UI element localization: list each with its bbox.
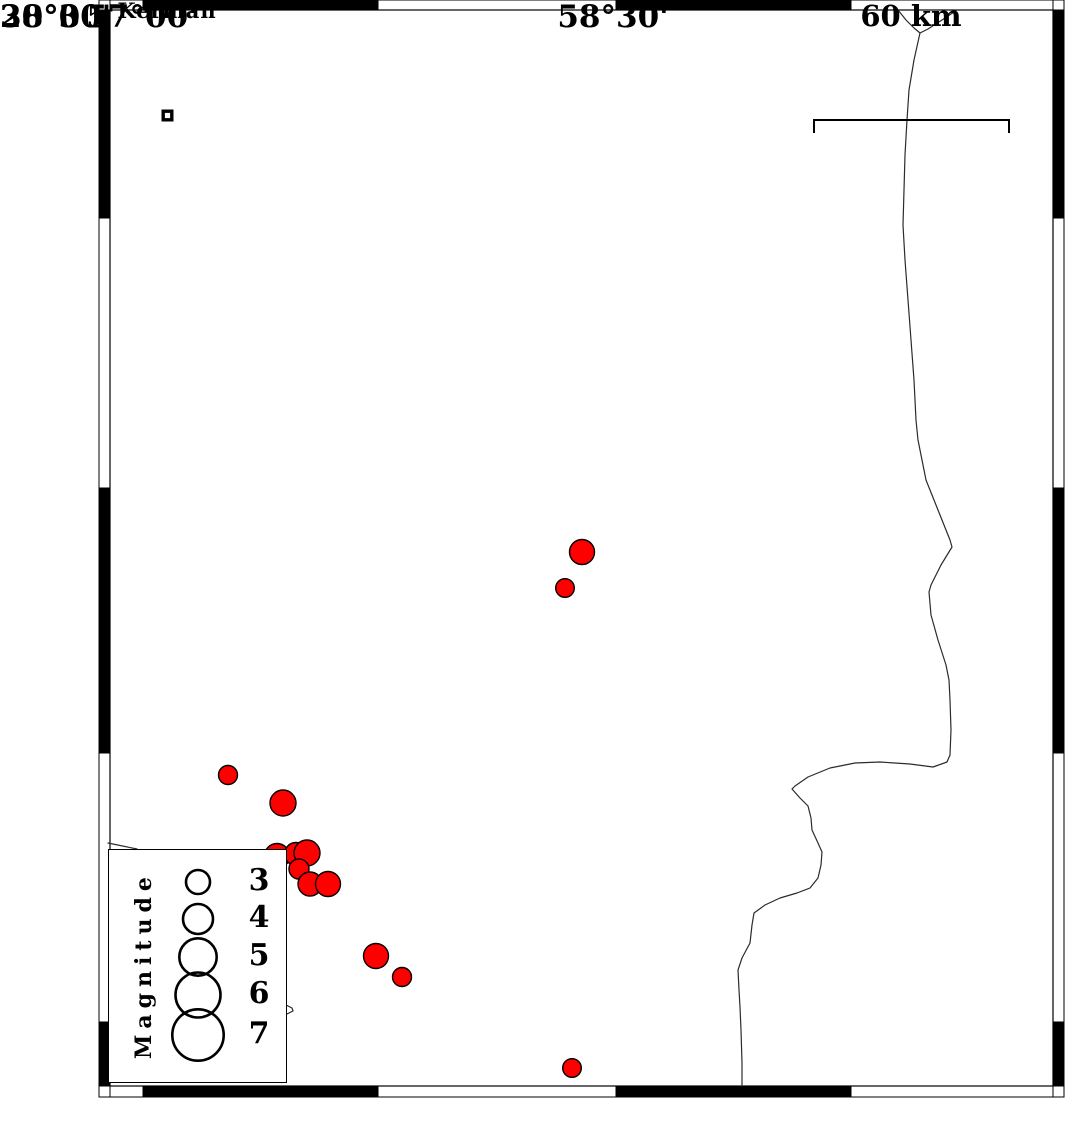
frame-segment-bottom <box>143 1086 378 1097</box>
earthquake-marker <box>270 790 296 816</box>
legend-magnitude-circle-5 <box>179 938 216 975</box>
seismicity-map-figure: 30°00' 28°30' 57°00' 58°30' Kerman 60 km… <box>0 0 1066 1135</box>
legend-entry-label-4: 4 <box>234 900 284 936</box>
legend-entry-label-5: 5 <box>234 938 284 974</box>
earthquake-marker <box>570 540 595 565</box>
earthquake-marker <box>219 766 238 785</box>
frame-segment-left <box>99 488 110 753</box>
frame-segment-bottom <box>110 1086 143 1097</box>
frame-segment-left <box>99 218 110 488</box>
city-marker-kerman <box>163 111 172 120</box>
earthquake-marker <box>316 872 341 897</box>
frame-segment-left <box>99 10 110 218</box>
frame-segment-right <box>1053 1022 1064 1086</box>
frame-segment-right <box>1053 488 1064 753</box>
legend-entry-label-6: 6 <box>234 976 284 1012</box>
magnitude-legend: Magnitude 3 4 5 6 7 <box>108 849 287 1083</box>
legend-entry-label-3: 3 <box>234 863 284 899</box>
frame-segment-bottom <box>851 1086 1053 1097</box>
frame-segment-right <box>1053 10 1064 218</box>
earthquake-marker <box>364 944 389 969</box>
legend-magnitude-circle-4 <box>183 904 213 934</box>
frame-segment-bottom <box>616 1086 851 1097</box>
city-label-kerman: Kerman <box>67 0 267 22</box>
legend-magnitude-circle-3 <box>186 870 210 894</box>
earthquake-marker <box>556 579 575 598</box>
frame-segment-right <box>1053 753 1064 1022</box>
scale-bar-label: 60 km <box>811 0 1011 32</box>
legend-magnitude-circle-6 <box>176 973 221 1018</box>
legend-title: Magnitude <box>130 845 158 1085</box>
frame-segment-right <box>1053 218 1064 488</box>
earthquake-marker <box>393 968 412 987</box>
lon-label-58-30: 58°30' <box>513 0 713 34</box>
frame-segment-bottom <box>378 1086 616 1097</box>
legend-entry-label-7: 7 <box>234 1016 284 1052</box>
earthquake-marker <box>563 1059 582 1078</box>
